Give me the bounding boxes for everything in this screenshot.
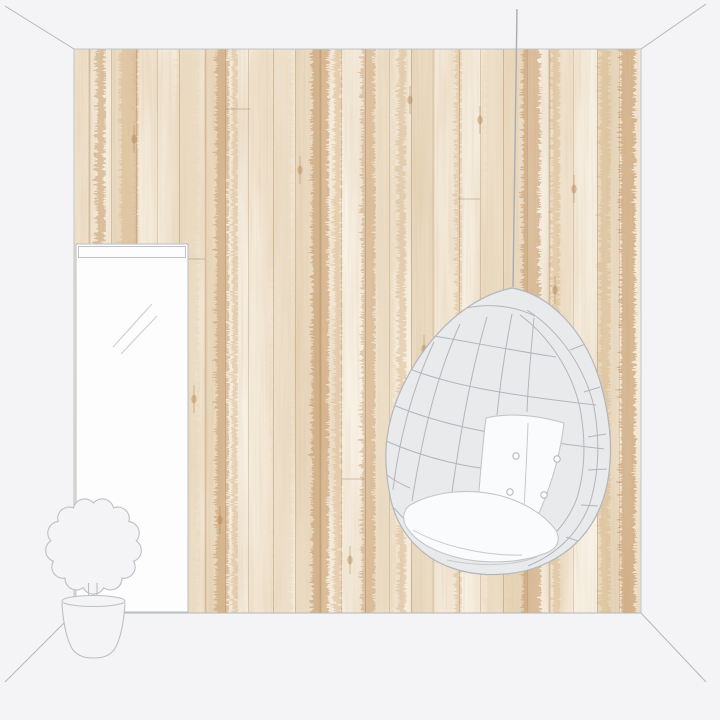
wood-streak: [332, 43, 340, 619]
ceiling-corner-left-line: [5, 6, 74, 49]
wood-streak: [230, 43, 236, 619]
room-scene: [0, 0, 720, 720]
cushion-button: [554, 456, 560, 462]
floor-corner-right-line: [641, 613, 706, 682]
cushion-button: [507, 489, 513, 495]
wood-streak: [396, 43, 404, 619]
mirror-frame-top: [79, 247, 186, 258]
plant-pot-rim: [62, 596, 125, 607]
wood-streak: [598, 43, 608, 619]
cushion-button: [513, 453, 519, 459]
ceiling-corner-right-line: [641, 4, 706, 49]
wood-streak: [618, 43, 633, 619]
scene-canvas: [0, 0, 720, 720]
wood-streak: [310, 43, 326, 619]
cushion-button: [541, 492, 547, 498]
potted-plant: [46, 499, 142, 658]
plant-pot-body: [62, 603, 125, 658]
